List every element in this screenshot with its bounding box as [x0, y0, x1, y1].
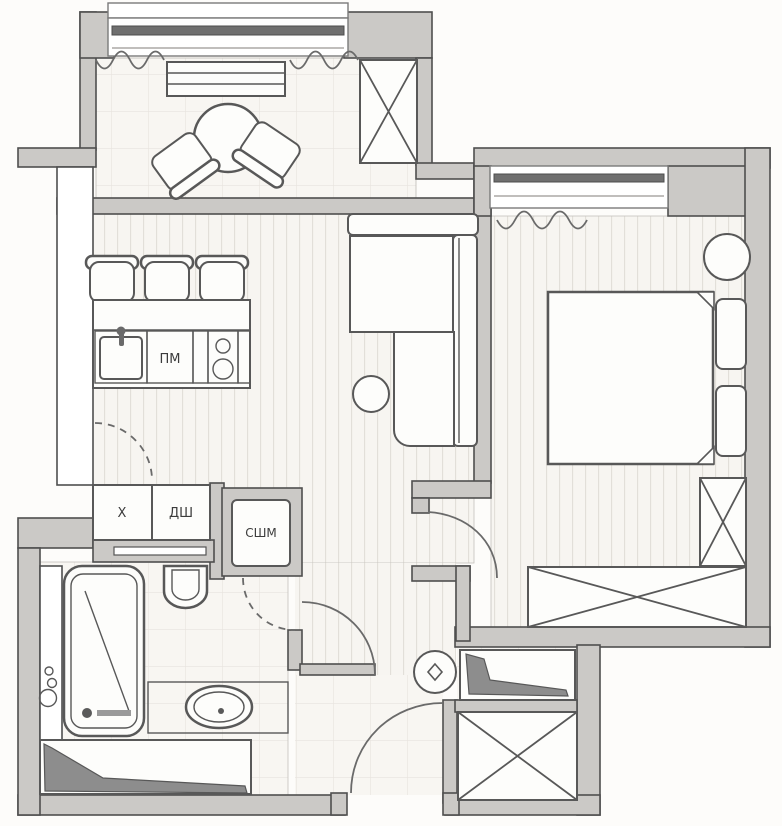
- entry-door-jamb-left: [331, 793, 347, 815]
- bar-stool: [141, 256, 193, 302]
- shelf-slot: [114, 547, 206, 555]
- label-cabinet: ДШ: [169, 506, 193, 521]
- washer-dryer: СШМ: [232, 500, 290, 566]
- balcony-window-glass: [112, 26, 344, 35]
- faucet-stem: [119, 333, 124, 346]
- bar-stool: [86, 256, 138, 302]
- wall-entry-right: [577, 645, 600, 815]
- entry-floor: [295, 675, 443, 795]
- wall-balcony-topright: [344, 12, 432, 58]
- door-leaf-corridor: [300, 664, 375, 675]
- wall-bedroom-bottom: [455, 627, 770, 647]
- sofa-armrest: [348, 214, 478, 235]
- sofa-back: [453, 235, 477, 446]
- kitchen-counter: ПМ: [93, 300, 250, 388]
- wall-jog-horizontal: [412, 481, 491, 498]
- wall-bath-left: [18, 548, 40, 815]
- label-washer: СШМ: [245, 526, 277, 540]
- wall-right: [745, 148, 770, 647]
- pillow-icon: [716, 386, 746, 456]
- fridge-box: Х: [93, 485, 152, 540]
- wedge-shelf-hall: [460, 650, 575, 700]
- entry-door-jamb-right: [443, 793, 459, 815]
- wall-left-step2: [18, 518, 93, 548]
- wall-hall-vertical: [456, 566, 470, 641]
- wall-balcony-right: [416, 58, 432, 165]
- toilet: [164, 566, 207, 608]
- floor-plan-page: ПМ Х ДШ СШМ: [0, 0, 782, 826]
- cabinet-box: ДШ: [152, 485, 210, 540]
- wall-jog-stub: [412, 498, 429, 513]
- bedroom-window-glass: [494, 174, 664, 182]
- wall-closet-left: [443, 700, 457, 803]
- balcony-bench: [167, 62, 285, 96]
- wardrobe-long: [528, 567, 746, 627]
- wall-bedroom-topright-fill: [668, 166, 746, 216]
- side-table: [353, 376, 389, 412]
- wall-bottom-bath: [18, 795, 345, 815]
- balcony-storage-box: [360, 60, 417, 163]
- wall-kitchen-left-column: [57, 167, 93, 485]
- drain-icon: [82, 708, 92, 718]
- sofa-chaise: [350, 236, 453, 332]
- floor-plan-canvas: ПМ Х ДШ СШМ: [0, 0, 782, 826]
- pillow-icon: [716, 299, 746, 369]
- bedroom-window-frame: [490, 166, 668, 208]
- sofa-seat: [394, 332, 454, 446]
- wall-closet-topband: [455, 700, 577, 712]
- wall-living-top: [57, 198, 490, 214]
- balcony-window-frame: [108, 18, 348, 56]
- pouf: [414, 651, 456, 693]
- wall-left-step: [18, 148, 96, 167]
- wedge-shelf-bath: [40, 740, 251, 794]
- label-fridge: Х: [118, 506, 127, 521]
- entry-closet: [458, 712, 577, 800]
- wardrobe-tall: [700, 478, 746, 566]
- label-dishwasher: ПМ: [160, 352, 181, 367]
- shower-cabin: [64, 566, 144, 736]
- plumbing-shaft: [40, 566, 63, 754]
- living-room: [348, 214, 478, 446]
- bar-stool: [196, 256, 248, 302]
- wall-bedroom-topleft-fill: [474, 166, 491, 216]
- balcony-parapet: [108, 3, 348, 18]
- wall-bedroom-top: [474, 148, 770, 168]
- drain-icon: [218, 708, 224, 714]
- bedside-chair: [704, 234, 750, 280]
